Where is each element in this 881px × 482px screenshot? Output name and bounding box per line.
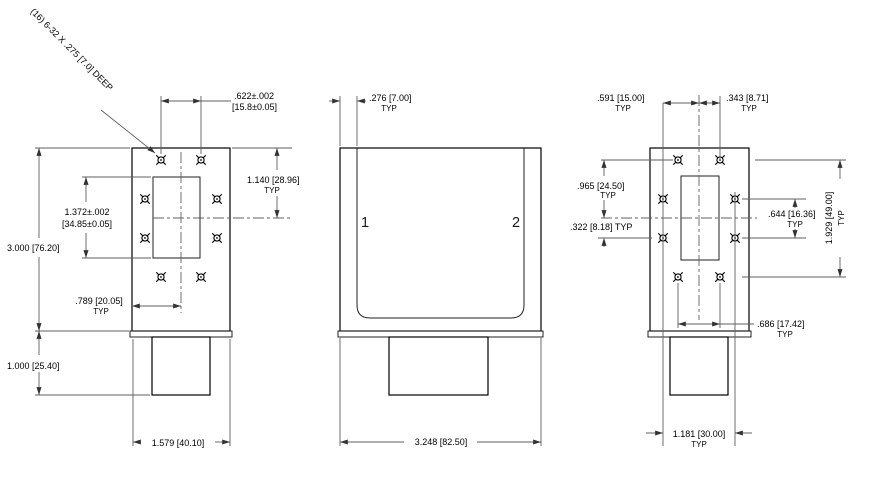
typ-label: TYP	[615, 104, 631, 113]
typ-label: TYP	[777, 330, 793, 339]
hole-marker	[140, 194, 149, 203]
dim-wall-thickness: .276 [7.00]	[369, 93, 412, 103]
hole-marker	[212, 194, 221, 203]
dim-centerline-to-mid-holes: .322 [8.18] TYP	[570, 222, 632, 232]
dim-hole-spacing-mm: [15.8±0.05]	[232, 102, 277, 112]
dim-mid-hole-spacing: .644 [16.36]	[768, 209, 816, 219]
typ-label: TYP	[264, 186, 280, 195]
dim-top-to-centerline: 1.140 [28.96]	[247, 175, 300, 185]
dim-bottom-hole-spacing: .686 [17.42]	[757, 319, 805, 329]
hole-marker	[156, 272, 165, 281]
port-2-label: 2	[512, 215, 520, 231]
typ-label: TYP	[691, 440, 707, 449]
typ-label: TYP	[381, 104, 397, 113]
typ-label: TYP	[93, 307, 109, 316]
hole-marker	[715, 272, 724, 281]
dim-overall-width: 1.579 [40.10]	[152, 438, 205, 448]
hole-marker	[673, 155, 682, 164]
typ-label: TYP	[741, 104, 757, 113]
hole-marker	[196, 155, 205, 164]
dim-hole-column-spacing: 1.181 [30.00]	[673, 429, 726, 439]
drawing-sheet: .622±.002 [15.8±0.05] (16) 6-32 X .275 […	[0, 0, 881, 482]
dim-overall-height: 3.000 [76.20]	[7, 243, 60, 253]
dim-edge-to-centerline: .789 [20.05]	[75, 296, 123, 306]
dim-centerline-to-right-holes: .343 [8.71]	[726, 93, 769, 103]
dim-top-holes-to-centerline: .965 [24.50]	[577, 181, 625, 191]
port-1-label: 1	[361, 215, 369, 231]
dim-connector-depth: 1.000 [25.40]	[7, 361, 60, 371]
hole-marker	[156, 155, 165, 164]
typ-label: TYP	[787, 220, 803, 229]
hole-marker	[196, 272, 205, 281]
dim-aperture-height-mm: [34.85±0.05]	[62, 219, 112, 229]
dim-hole-pattern-height: 1.929 [49.00]	[824, 192, 834, 245]
hole-marker	[673, 272, 682, 281]
hole-marker	[212, 233, 221, 242]
dim-overall-width: 3.248 [82.50]	[415, 437, 468, 447]
typ-label: TYP	[837, 210, 846, 226]
waveguide-adapter-drawing: .622±.002 [15.8±0.05] (16) 6-32 X .275 […	[0, 0, 881, 482]
dim-aperture-height-in: 1.372±.002	[65, 207, 110, 217]
dim-hole-spacing-in: .622±.002	[234, 91, 274, 101]
typ-label: TYP	[600, 191, 616, 200]
hole-marker	[140, 233, 149, 242]
dim-centerline-to-left-holes: .591 [15.00]	[597, 93, 645, 103]
